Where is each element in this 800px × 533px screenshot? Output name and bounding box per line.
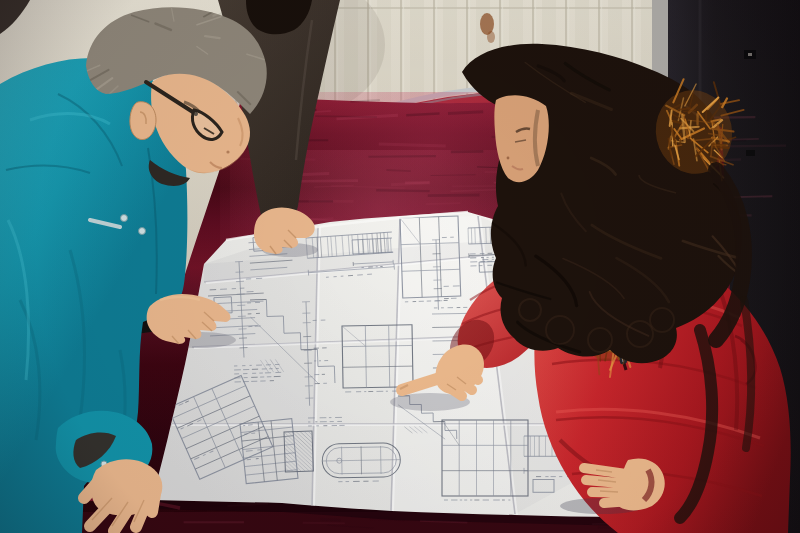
photo-scene <box>0 0 800 533</box>
scene-canvas <box>0 0 800 533</box>
vignette-overlay <box>0 0 800 533</box>
